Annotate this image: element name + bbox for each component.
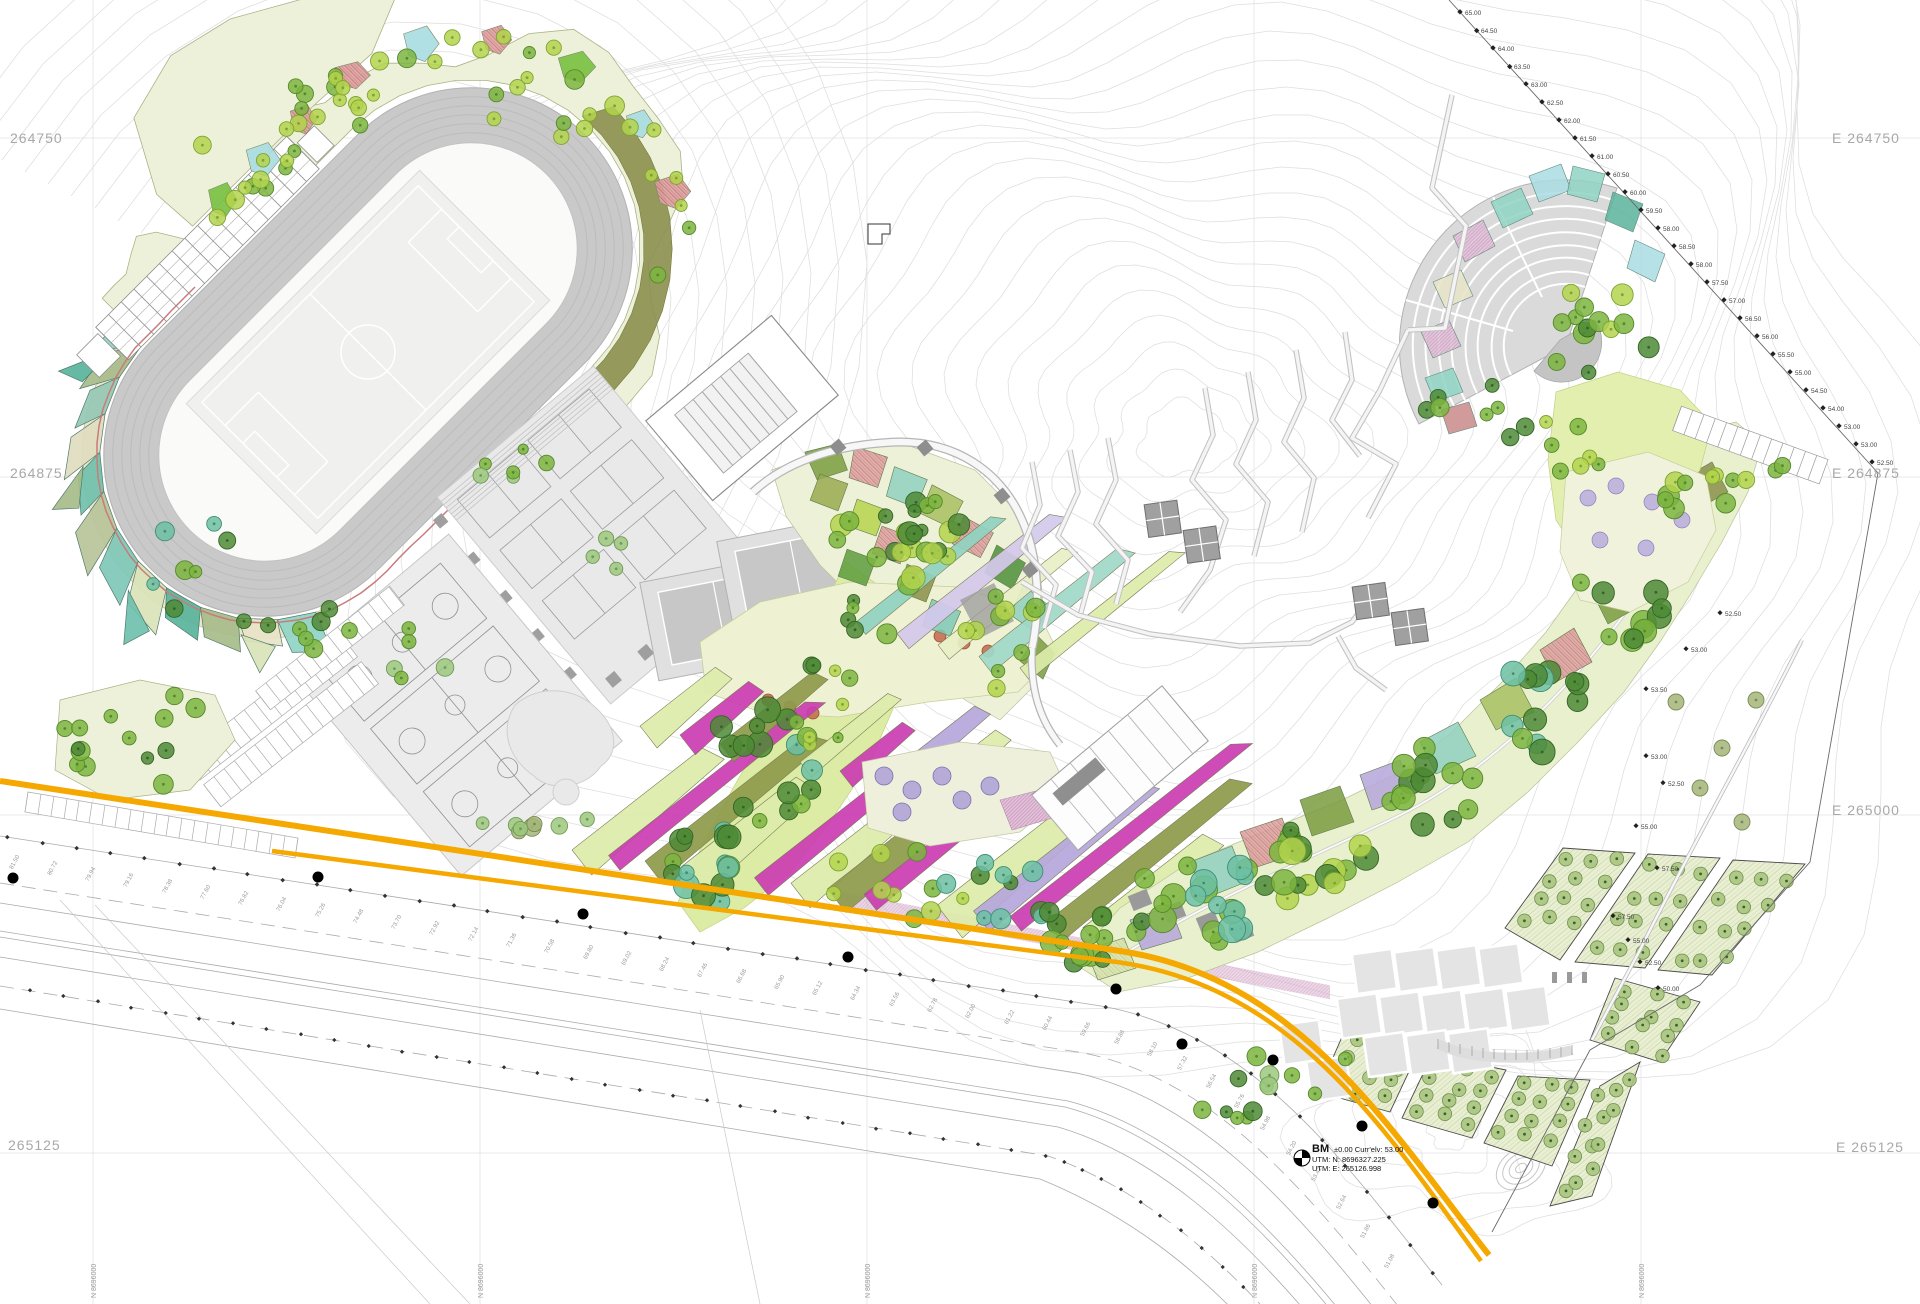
svg-text:61.50: 61.50 [1580, 136, 1597, 143]
svg-text:53.50: 53.50 [1651, 687, 1668, 694]
svg-text:53.00: 53.00 [1691, 647, 1708, 654]
svg-text:57.50: 57.50 [1712, 280, 1729, 287]
svg-text:52.50: 52.50 [1725, 611, 1742, 618]
svg-text:55.00: 55.00 [1633, 938, 1650, 945]
svg-text:54.00: 54.00 [1828, 406, 1845, 413]
svg-text:54.50: 54.50 [1811, 388, 1828, 395]
svg-text:56.00: 56.00 [1762, 334, 1779, 341]
svg-text:E 264750: E 264750 [1832, 130, 1900, 146]
svg-text:E 264875: E 264875 [1832, 465, 1900, 481]
svg-text:58.50: 58.50 [1679, 244, 1696, 251]
svg-text:264875: 264875 [10, 465, 63, 481]
svg-text:55.00: 55.00 [1795, 370, 1812, 377]
svg-text:63.50: 63.50 [1514, 64, 1531, 71]
svg-text:55.50: 55.50 [1778, 352, 1795, 359]
svg-text:62.00: 62.00 [1564, 118, 1581, 125]
svg-text:64.50: 64.50 [1481, 28, 1498, 35]
svg-text:62.50: 62.50 [1547, 100, 1564, 107]
svg-text:UTM: E: 265126.998: UTM: E: 265126.998 [1312, 1164, 1381, 1173]
svg-text:BM: BM [1312, 1143, 1329, 1155]
svg-text:E 265125: E 265125 [1836, 1139, 1904, 1155]
svg-text:64.00: 64.00 [1498, 46, 1515, 53]
svg-text:UTM: N: 8696327.225: UTM: N: 8696327.225 [1312, 1155, 1386, 1164]
svg-text:60.50: 60.50 [1613, 172, 1630, 179]
svg-text:52.50: 52.50 [1645, 960, 1662, 967]
svg-text:N 8696000: N 8696000 [865, 1264, 872, 1298]
svg-text:265125: 265125 [8, 1137, 61, 1153]
svg-text:N 8696000: N 8696000 [1639, 1264, 1646, 1298]
svg-text:53.00: 53.00 [1651, 754, 1668, 761]
svg-text:E 265000: E 265000 [1832, 802, 1900, 818]
svg-text:57.00: 57.00 [1729, 298, 1746, 305]
svg-text:65.00: 65.00 [1465, 10, 1482, 17]
svg-text:264750: 264750 [10, 130, 63, 146]
svg-text:55.00: 55.00 [1641, 824, 1658, 831]
svg-text:53.00: 53.00 [1844, 424, 1861, 431]
svg-text:53.00: 53.00 [1861, 442, 1878, 449]
svg-text:N 8696000: N 8696000 [478, 1264, 485, 1298]
svg-text:50.00: 50.00 [1663, 986, 1680, 993]
svg-text:N 8696000: N 8696000 [1252, 1264, 1259, 1298]
svg-text:58.00: 58.00 [1696, 262, 1713, 269]
svg-text:57.50: 57.50 [1662, 866, 1679, 873]
svg-text:N 8696000: N 8696000 [91, 1264, 98, 1298]
svg-text:59.50: 59.50 [1646, 208, 1663, 215]
svg-text:57.50: 57.50 [1618, 914, 1635, 921]
svg-text:60.00: 60.00 [1630, 190, 1647, 197]
svg-text:61.00: 61.00 [1597, 154, 1614, 161]
svg-text:±0.00 Curr'elv: 53.00: ±0.00 Curr'elv: 53.00 [1334, 1145, 1403, 1154]
svg-text:52.50: 52.50 [1668, 781, 1685, 788]
svg-text:58.00: 58.00 [1663, 226, 1680, 233]
svg-text:63.00: 63.00 [1531, 82, 1548, 89]
svg-text:56.50: 56.50 [1745, 316, 1762, 323]
